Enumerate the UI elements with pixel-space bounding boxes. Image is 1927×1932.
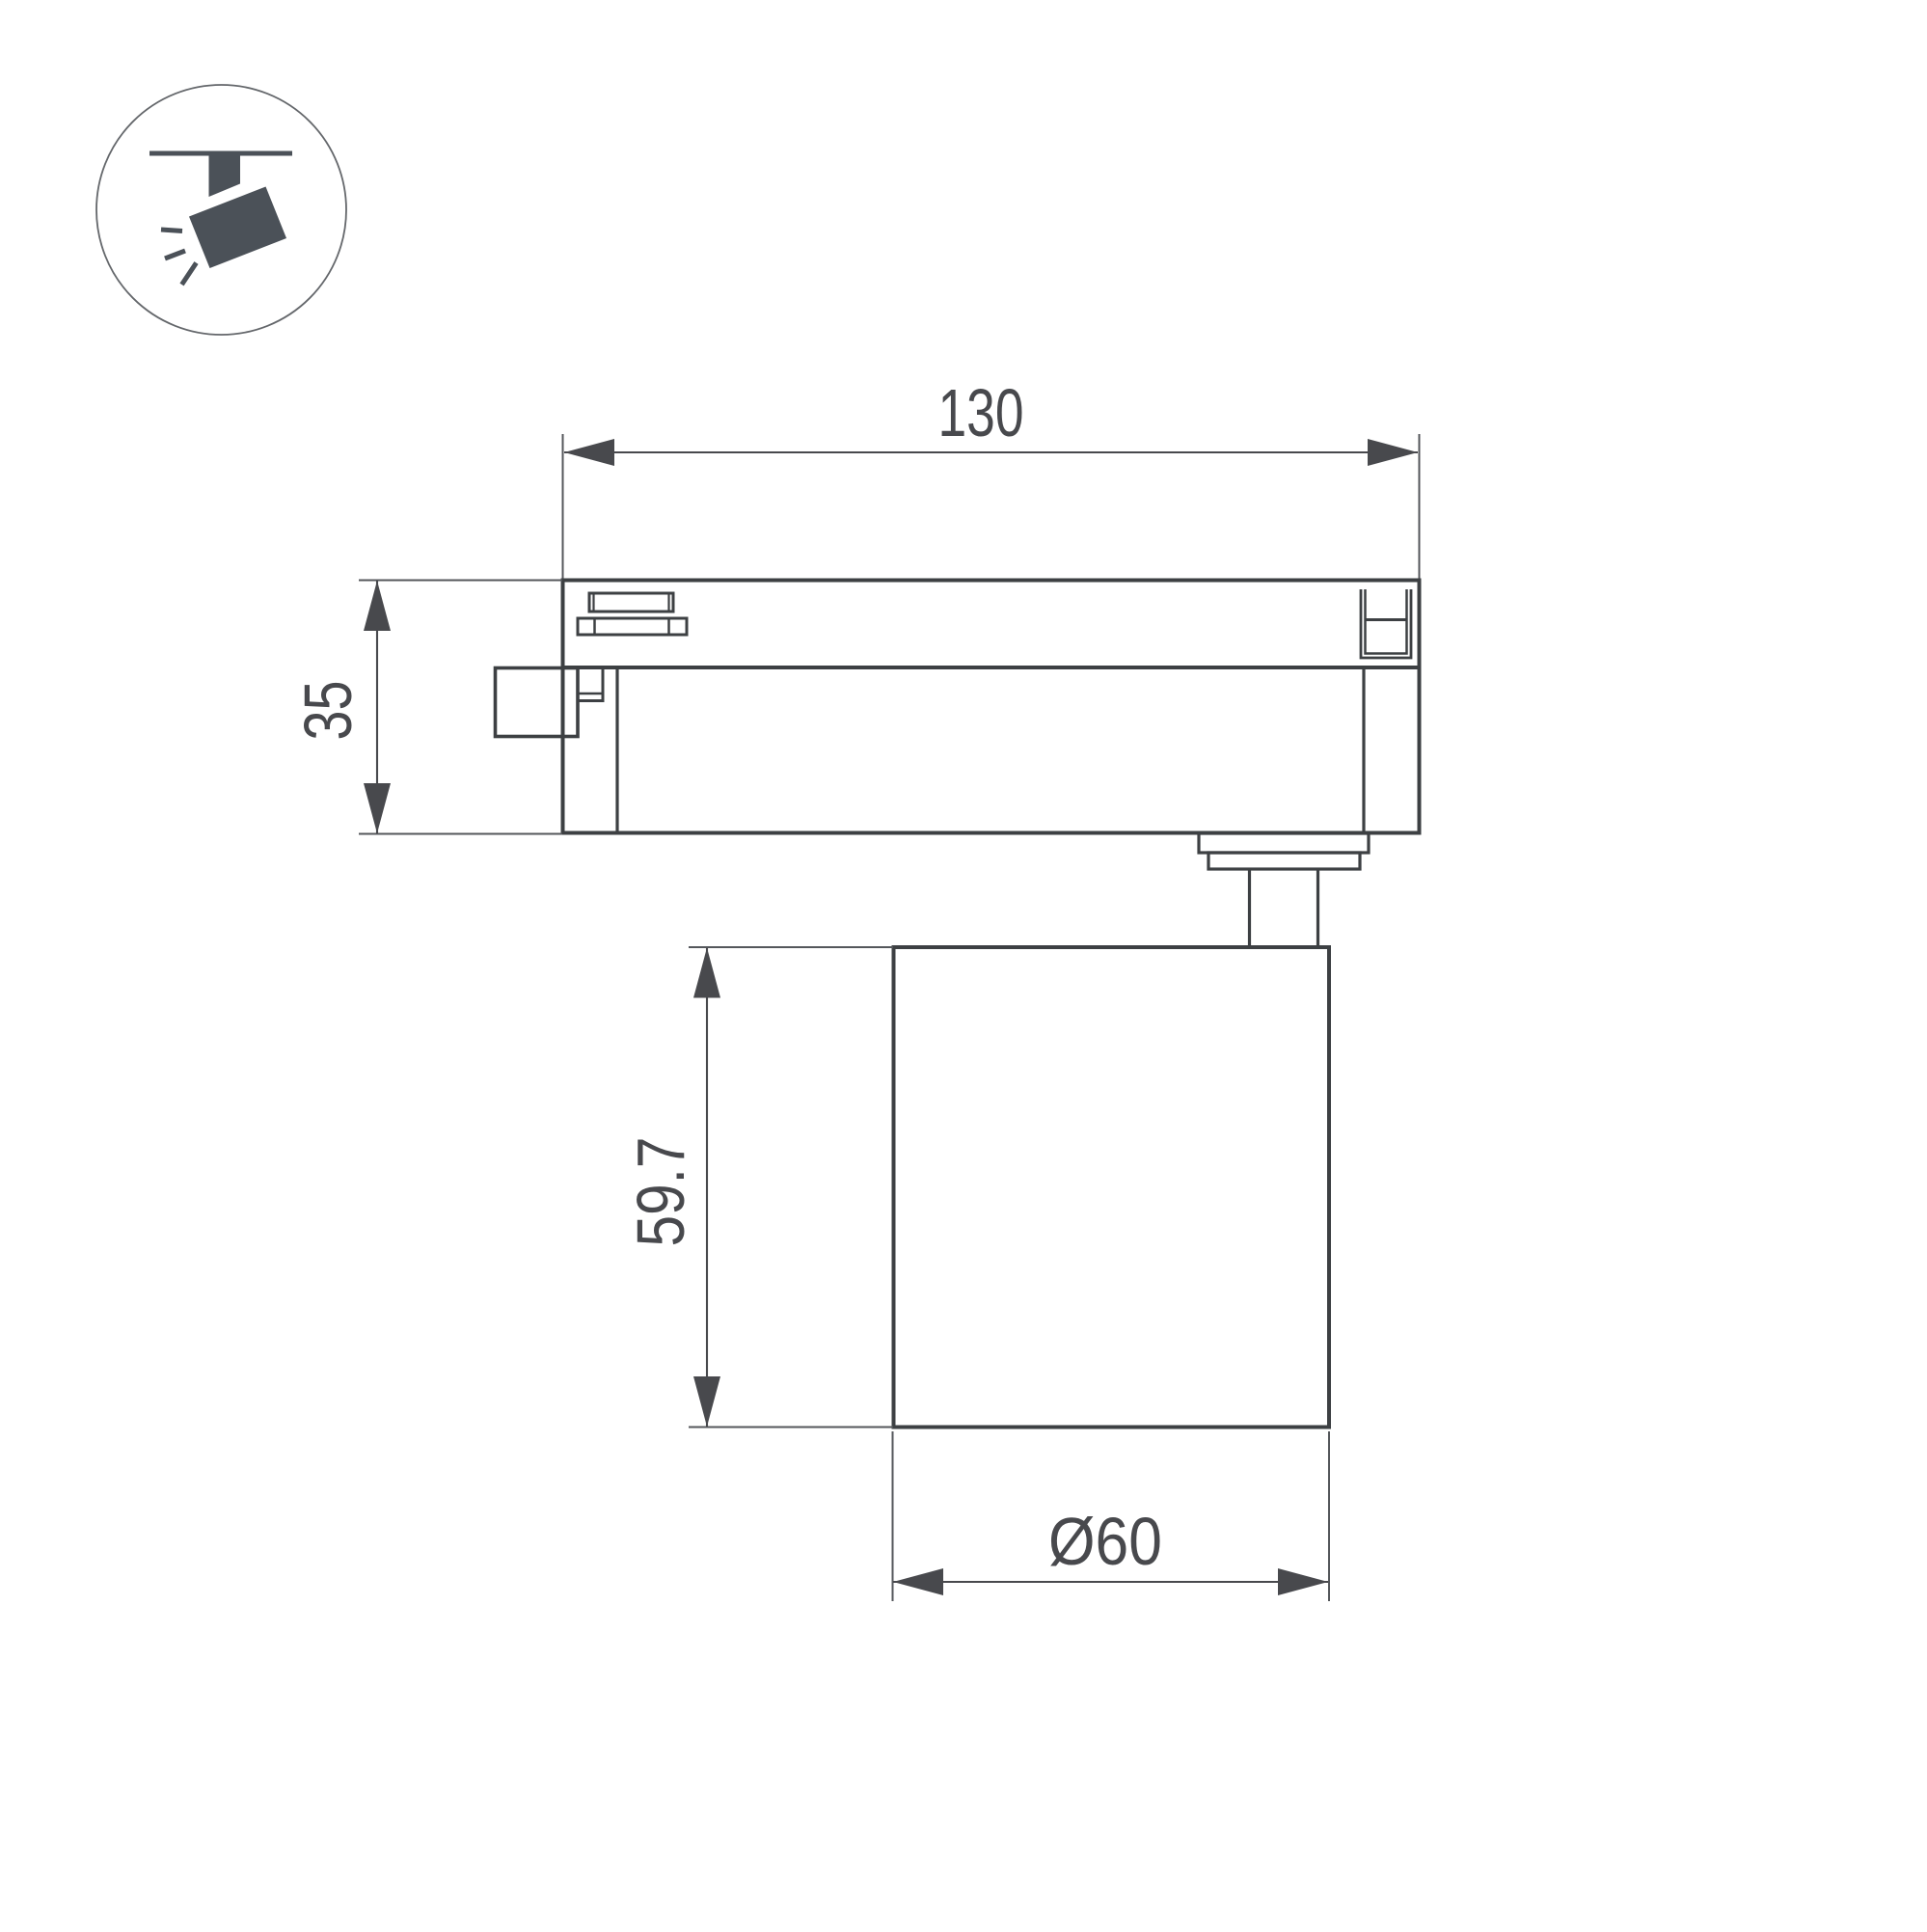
svg-text:130: 130: [938, 375, 1024, 450]
svg-text:Ø60: Ø60: [1048, 1504, 1162, 1579]
svg-text:59.7: 59.7: [623, 1137, 698, 1247]
svg-text:35: 35: [290, 681, 366, 741]
